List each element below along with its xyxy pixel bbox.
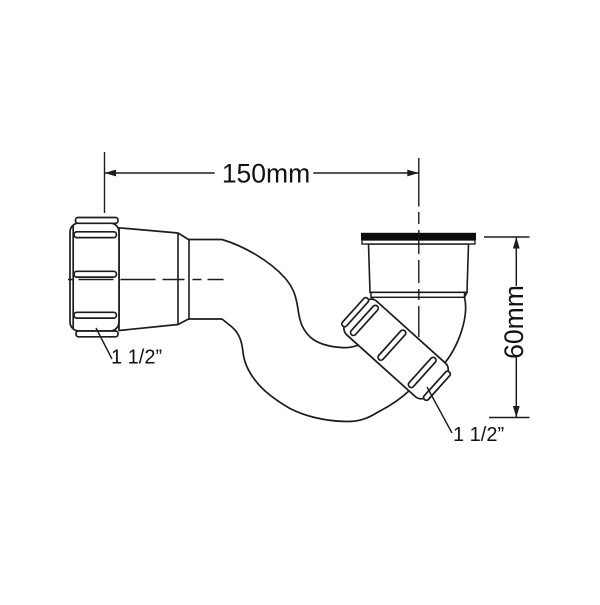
svg-text:1 1/2”: 1 1/2” xyxy=(453,424,504,446)
svg-text:60mm: 60mm xyxy=(499,285,529,359)
svg-text:1 1/2”: 1 1/2” xyxy=(111,347,162,369)
svg-text:150mm: 150mm xyxy=(222,159,310,189)
